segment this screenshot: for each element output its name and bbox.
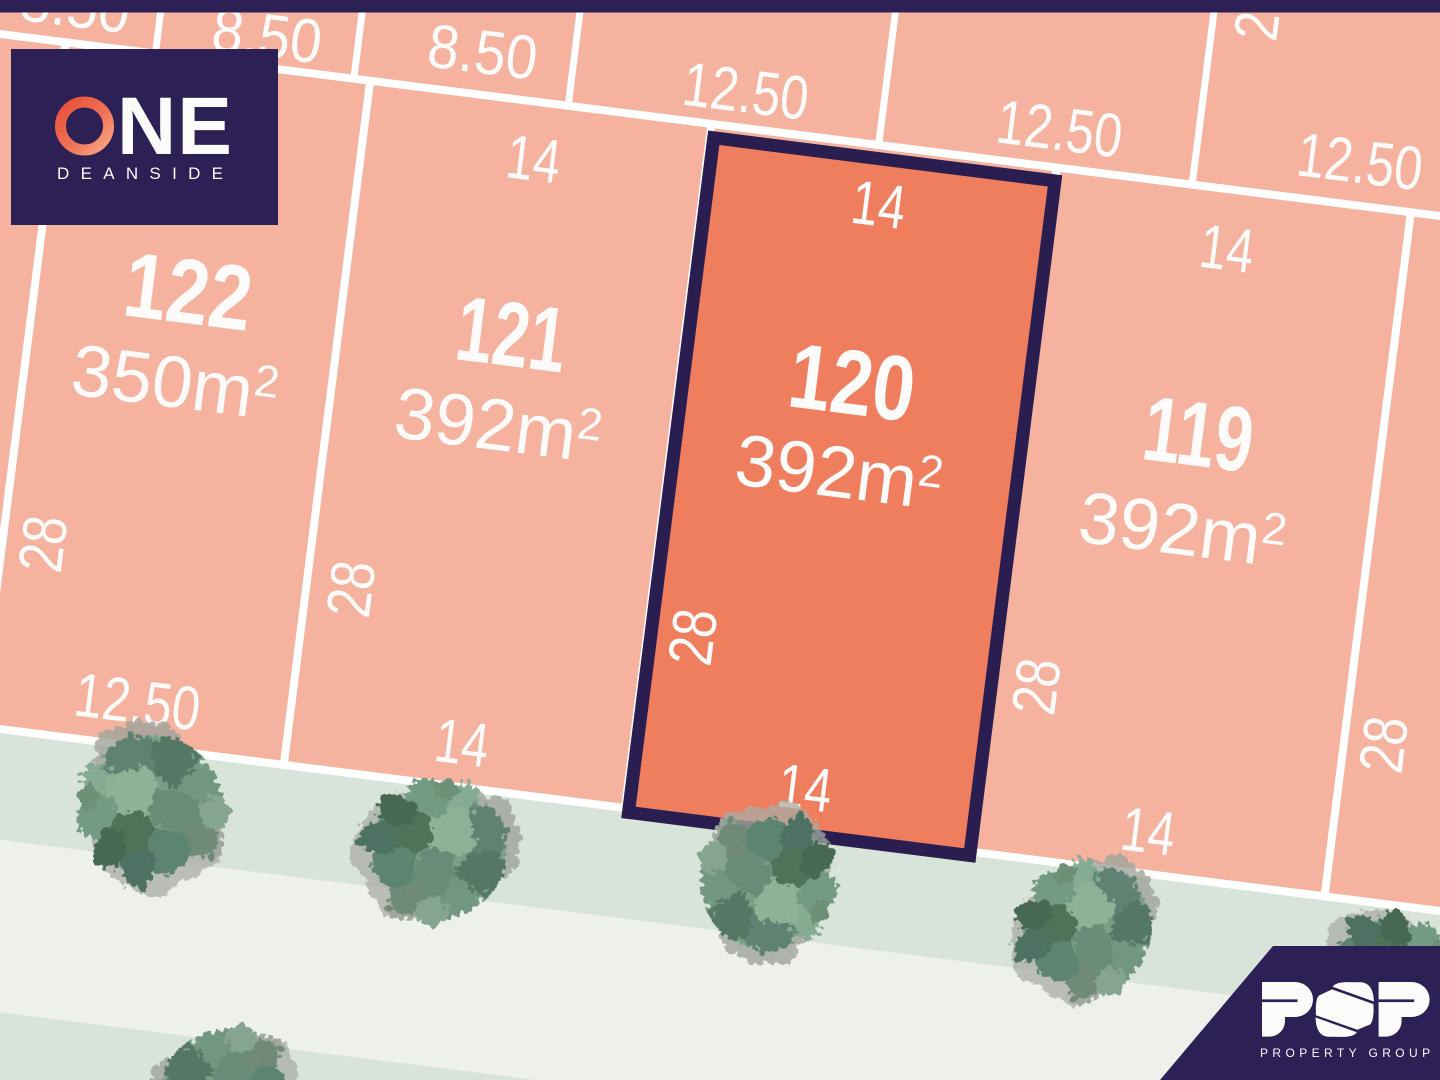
svg-text:14: 14 bbox=[847, 168, 909, 243]
svg-text:14: 14 bbox=[1117, 795, 1179, 870]
svg-text:NE: NE bbox=[117, 81, 233, 172]
svg-text:14: 14 bbox=[431, 706, 493, 781]
svg-text:14: 14 bbox=[502, 122, 564, 197]
svg-text:28: 28 bbox=[6, 512, 81, 576]
svg-text:DEANSIDE: DEANSIDE bbox=[57, 164, 234, 183]
svg-text:PROPERTY GROUP: PROPERTY GROUP bbox=[1260, 1046, 1435, 1060]
svg-text:120: 120 bbox=[783, 325, 921, 442]
svg-text:8.50: 8.50 bbox=[424, 12, 542, 94]
svg-text:121: 121 bbox=[450, 277, 572, 392]
svg-text:28: 28 bbox=[656, 605, 731, 669]
svg-text:119: 119 bbox=[1137, 377, 1259, 492]
svg-text:122: 122 bbox=[118, 234, 258, 351]
svg-text:28: 28 bbox=[1347, 713, 1422, 777]
svg-text:28: 28 bbox=[999, 655, 1074, 719]
svg-text:14: 14 bbox=[1196, 212, 1258, 287]
svg-text:28: 28 bbox=[314, 557, 389, 621]
